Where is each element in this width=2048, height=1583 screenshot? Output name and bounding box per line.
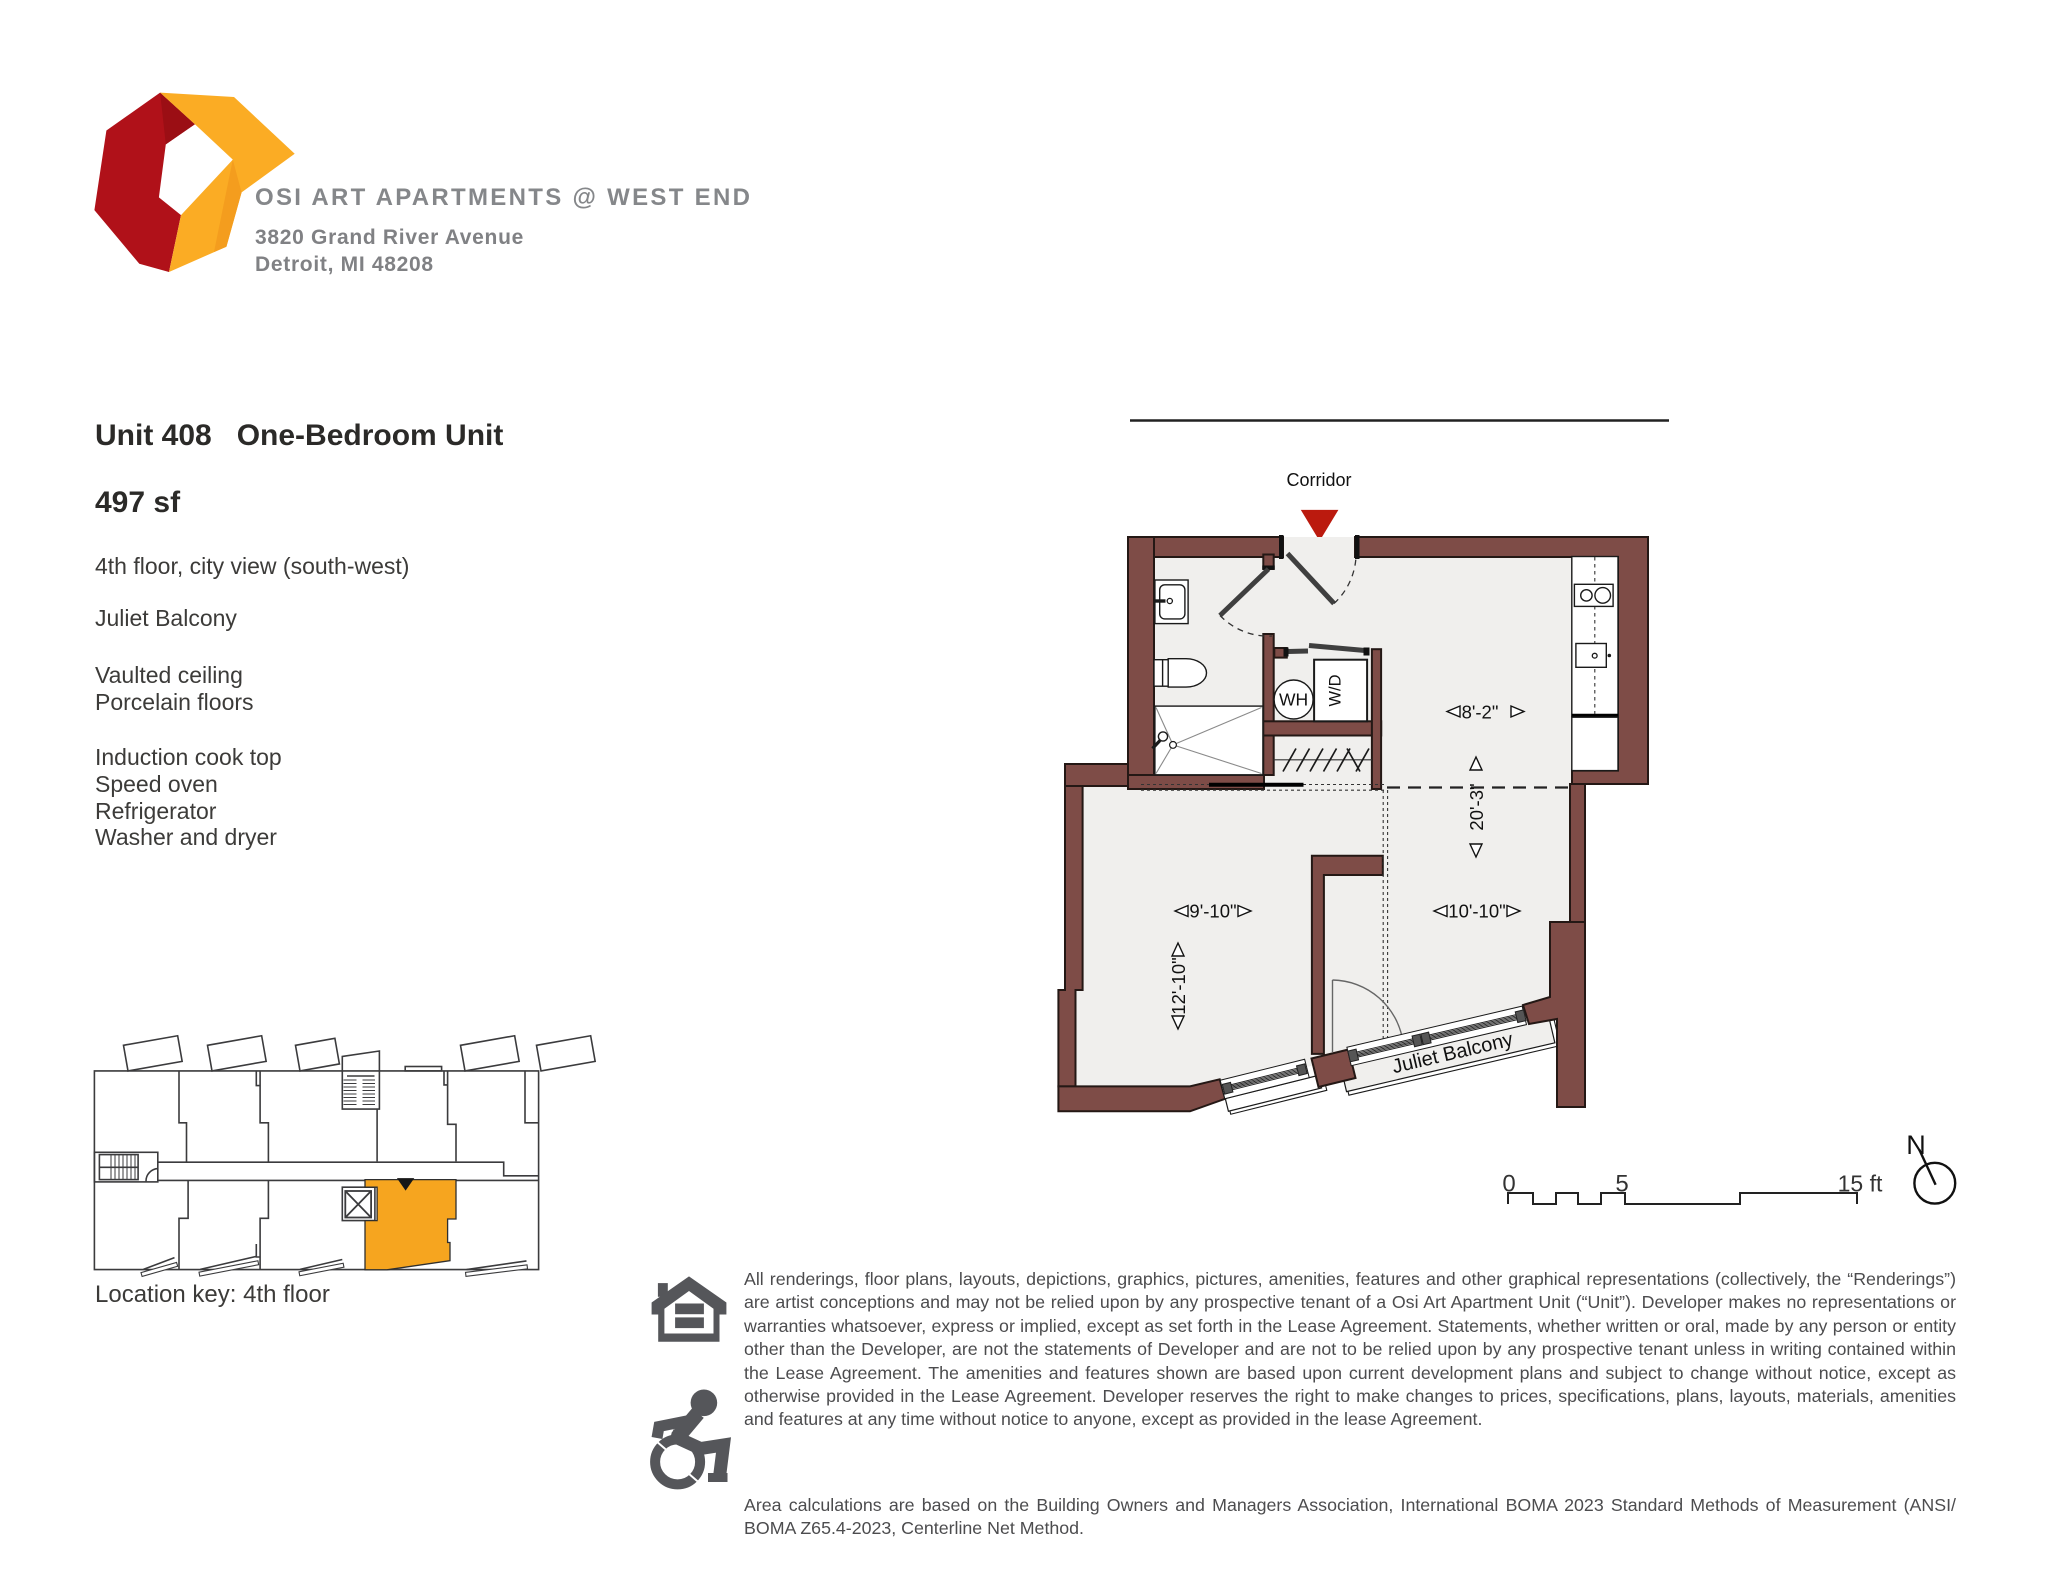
svg-text:10'-10": 10'-10" <box>1448 901 1505 922</box>
svg-text:5: 5 <box>1615 1171 1628 1198</box>
svg-text:WH: WH <box>1279 690 1308 710</box>
svg-text:9'-10": 9'-10" <box>1189 901 1236 922</box>
svg-text:Corridor: Corridor <box>1286 470 1351 490</box>
svg-text:8'-2": 8'-2" <box>1462 702 1499 723</box>
svg-text:W/D: W/D <box>1327 674 1345 706</box>
svg-text:0: 0 <box>1502 1171 1515 1198</box>
svg-text:20'-3": 20'-3" <box>1466 783 1487 830</box>
svg-text:15 ft: 15 ft <box>1838 1171 1883 1197</box>
svg-text:12'-10": 12'-10" <box>1168 957 1189 1014</box>
